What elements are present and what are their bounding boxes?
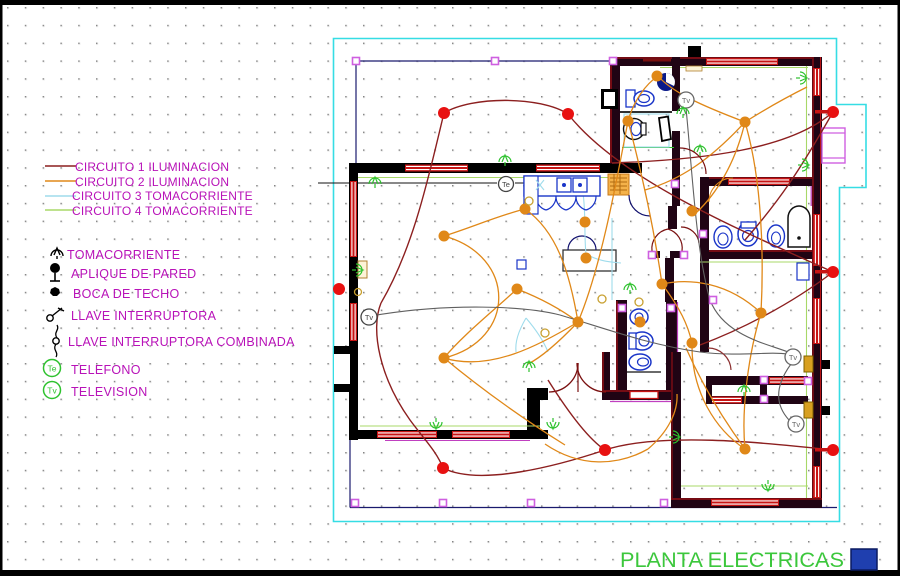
svg-text:CIRCUITO 3 TOMACORRIENTE: CIRCUITO 3 TOMACORRIENTE	[72, 189, 253, 203]
svg-text:LLAVE INTERRUPTORA COMBINADA: LLAVE INTERRUPTORA COMBINADA	[68, 335, 295, 349]
svg-text:Tv: Tv	[792, 420, 801, 429]
svg-text:Tv: Tv	[682, 96, 691, 105]
svg-text:Tv: Tv	[365, 313, 374, 322]
svg-text:TELEVISION: TELEVISION	[71, 385, 148, 399]
svg-text:LLAVE INTERRUPTORA: LLAVE INTERRUPTORA	[71, 309, 217, 323]
svg-text:BOCA DE TECHO: BOCA DE TECHO	[73, 287, 179, 301]
svg-text:TOMACORRIENTE: TOMACORRIENTE	[67, 248, 180, 262]
svg-text:CIRCUITO 4 TOMACORRIENTE: CIRCUITO 4 TOMACORRIENTE	[72, 204, 253, 218]
svg-text:CIRCUITO 1 ILUMINACION: CIRCUITO 1 ILUMINACION	[75, 160, 229, 174]
svg-text:Tv: Tv	[789, 353, 798, 362]
svg-text:Te: Te	[502, 180, 510, 189]
svg-text:APLIQUE DE PARED: APLIQUE DE PARED	[71, 267, 196, 281]
svg-text:TELEFONO: TELEFONO	[71, 363, 141, 377]
svg-text:Te: Te	[48, 364, 57, 374]
svg-text:Tv: Tv	[47, 386, 57, 396]
svg-text:CIRCUITO 2 ILUMINACION: CIRCUITO 2 ILUMINACION	[75, 175, 229, 189]
svg-text:PLANTA ELECTRICAS: PLANTA ELECTRICAS	[620, 549, 844, 572]
